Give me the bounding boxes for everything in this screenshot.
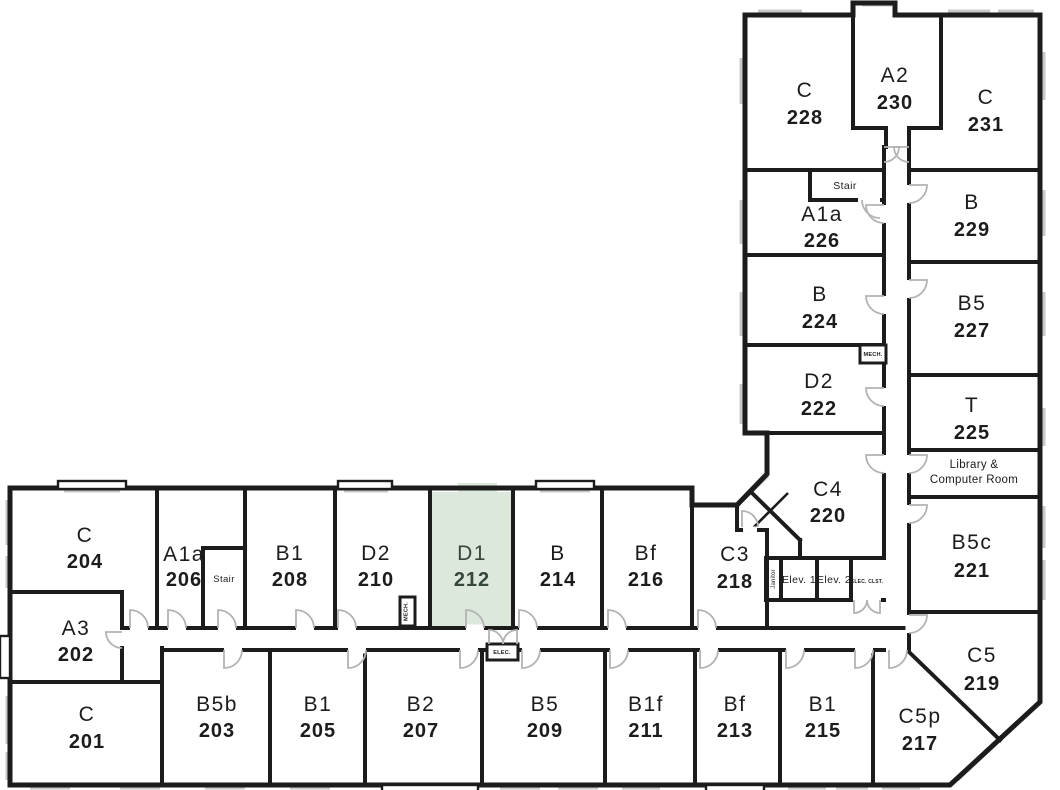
svg-text:204: 204 bbox=[67, 551, 103, 573]
svg-text:C3: C3 bbox=[720, 543, 750, 566]
elev-1-label: Elev. 1 bbox=[782, 574, 816, 586]
svg-text:C5p: C5p bbox=[898, 705, 941, 728]
room-220: C4 220 bbox=[810, 478, 846, 527]
svg-text:203: 203 bbox=[199, 720, 235, 742]
floor-plan-svg: C 228 A2 230 C 231 A1a 226 B 229 B 224 B… bbox=[0, 0, 1060, 790]
svg-text:220: 220 bbox=[810, 505, 846, 527]
room-208: B1 208 bbox=[272, 542, 308, 591]
room-219: C5 219 bbox=[964, 644, 1000, 695]
room-201: C 201 bbox=[69, 703, 105, 753]
svg-text:228: 228 bbox=[787, 107, 823, 129]
room-209: B5 209 bbox=[527, 693, 563, 742]
room-218: C3 218 bbox=[717, 543, 753, 593]
room-202: A3 202 bbox=[58, 617, 94, 666]
svg-text:B1: B1 bbox=[809, 693, 838, 716]
svg-text:217: 217 bbox=[902, 733, 938, 755]
elev-2-label: Elev. 2 bbox=[817, 574, 851, 586]
room-216: Bf 216 bbox=[628, 542, 664, 591]
svg-text:211: 211 bbox=[628, 720, 663, 742]
svg-text:205: 205 bbox=[300, 720, 336, 742]
room-210: D2 210 bbox=[358, 542, 394, 591]
svg-text:B1: B1 bbox=[304, 693, 333, 716]
svg-text:B: B bbox=[550, 542, 566, 565]
svg-text:231: 231 bbox=[968, 114, 1004, 136]
svg-text:B5: B5 bbox=[531, 693, 560, 716]
svg-text:221: 221 bbox=[954, 560, 990, 582]
svg-text:Bf: Bf bbox=[724, 693, 747, 716]
svg-text:226: 226 bbox=[804, 230, 840, 252]
elec-clst-label: ELEC. CLST. bbox=[851, 579, 884, 585]
room-213: Bf 213 bbox=[717, 693, 753, 742]
stair-upper-label: Stair bbox=[833, 180, 857, 192]
svg-text:B2: B2 bbox=[407, 693, 436, 716]
library-computer-room-label: Library & Computer Room bbox=[930, 459, 1018, 486]
svg-text:202: 202 bbox=[58, 644, 94, 666]
room-221: B5c 221 bbox=[952, 531, 993, 582]
svg-text:206: 206 bbox=[166, 569, 202, 591]
svg-text:Computer Room: Computer Room bbox=[930, 474, 1018, 486]
svg-text:Bf: Bf bbox=[635, 542, 658, 565]
room-215: B1 215 bbox=[805, 693, 841, 742]
svg-text:B5: B5 bbox=[958, 292, 987, 315]
svg-text:230: 230 bbox=[877, 92, 913, 114]
svg-text:B1: B1 bbox=[276, 542, 305, 565]
room-214: B 214 bbox=[540, 542, 576, 591]
room-217: C5p 217 bbox=[898, 705, 941, 755]
room-229: B 229 bbox=[954, 191, 990, 241]
room-211: B1f 211 bbox=[628, 693, 664, 742]
svg-text:C: C bbox=[77, 524, 94, 547]
room-203: B5b 203 bbox=[196, 693, 238, 742]
floor-plan: C 228 A2 230 C 231 A1a 226 B 229 B 224 B… bbox=[0, 0, 1060, 790]
svg-text:201: 201 bbox=[69, 731, 105, 753]
svg-text:B: B bbox=[812, 283, 828, 306]
svg-text:215: 215 bbox=[805, 720, 841, 742]
svg-text:219: 219 bbox=[964, 673, 1000, 695]
svg-text:D1: D1 bbox=[457, 542, 487, 565]
svg-text:C4: C4 bbox=[813, 478, 843, 501]
svg-text:D2: D2 bbox=[804, 370, 834, 393]
svg-text:218: 218 bbox=[717, 571, 753, 593]
elec-label: ELEC. bbox=[493, 650, 511, 656]
svg-text:224: 224 bbox=[802, 311, 838, 333]
stair-lower-label: Stair bbox=[213, 574, 235, 585]
svg-text:213: 213 bbox=[717, 720, 753, 742]
room-206: A1a 206 bbox=[163, 543, 205, 591]
room-225: T 225 bbox=[954, 394, 990, 444]
svg-text:C: C bbox=[797, 79, 814, 102]
svg-text:C: C bbox=[978, 86, 995, 109]
svg-text:T: T bbox=[965, 394, 979, 417]
mech-upper-label: MECH. bbox=[863, 352, 882, 358]
window-bays bbox=[0, 481, 764, 790]
svg-text:212: 212 bbox=[454, 569, 490, 591]
room-226: A1a 226 bbox=[801, 203, 843, 252]
svg-text:227: 227 bbox=[954, 320, 990, 342]
room-222: D2 222 bbox=[801, 370, 837, 420]
svg-text:B: B bbox=[964, 191, 980, 214]
svg-text:A3: A3 bbox=[62, 617, 91, 640]
svg-text:209: 209 bbox=[527, 720, 563, 742]
room-228: C 228 bbox=[787, 79, 823, 129]
svg-text:216: 216 bbox=[628, 569, 664, 591]
room-227: B5 227 bbox=[954, 292, 990, 342]
svg-text:Library &: Library & bbox=[950, 459, 999, 471]
svg-text:B5c: B5c bbox=[952, 531, 993, 554]
svg-text:C5: C5 bbox=[967, 644, 997, 667]
room-230: A2 230 bbox=[877, 64, 913, 114]
svg-text:D2: D2 bbox=[361, 542, 391, 565]
svg-text:A1a: A1a bbox=[801, 203, 843, 226]
mech-lower-label: MECH. bbox=[404, 602, 410, 621]
svg-text:222: 222 bbox=[801, 398, 837, 420]
svg-text:B1f: B1f bbox=[628, 693, 664, 716]
room-231: C 231 bbox=[968, 86, 1004, 136]
room-205: B1 205 bbox=[300, 693, 336, 742]
room-207: B2 207 bbox=[403, 693, 439, 742]
svg-text:229: 229 bbox=[954, 219, 990, 241]
svg-text:C: C bbox=[79, 703, 96, 726]
svg-text:A1a: A1a bbox=[163, 543, 205, 566]
room-224: B 224 bbox=[802, 283, 838, 333]
svg-text:B5b: B5b bbox=[196, 693, 238, 716]
janitor-label: Janitor bbox=[771, 569, 777, 588]
svg-text:214: 214 bbox=[540, 569, 576, 591]
svg-text:A2: A2 bbox=[881, 64, 910, 87]
room-204: C 204 bbox=[67, 524, 103, 573]
svg-text:225: 225 bbox=[954, 422, 990, 444]
svg-text:208: 208 bbox=[272, 569, 308, 591]
svg-text:207: 207 bbox=[403, 720, 439, 742]
svg-text:210: 210 bbox=[358, 569, 394, 591]
